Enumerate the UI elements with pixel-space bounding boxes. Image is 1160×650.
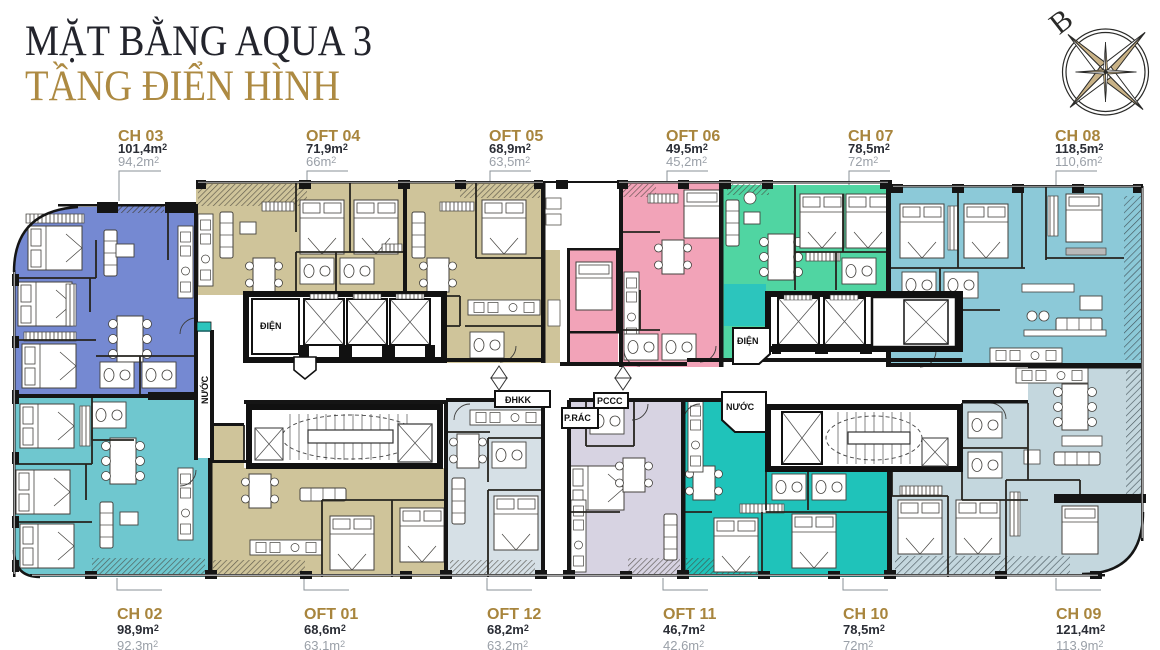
svg-text:94,2m2: 94,2m2 bbox=[118, 154, 159, 169]
svg-text:45,2m2: 45,2m2 bbox=[666, 154, 707, 169]
svg-text:68,2m2: 68,2m2 bbox=[487, 622, 529, 637]
svg-text:ĐHKK: ĐHKK bbox=[505, 395, 531, 405]
svg-text:63,2m2: 63,2m2 bbox=[487, 638, 528, 650]
svg-text:OFT 12: OFT 12 bbox=[487, 606, 541, 623]
svg-text:CH 09: CH 09 bbox=[1056, 606, 1101, 623]
svg-text:ĐIỆN: ĐIỆN bbox=[260, 320, 282, 331]
svg-text:121,4m2: 121,4m2 bbox=[1056, 622, 1105, 637]
svg-text:42,6m2: 42,6m2 bbox=[663, 638, 704, 650]
svg-text:OFT 11: OFT 11 bbox=[663, 606, 716, 623]
svg-text:46,7m2: 46,7m2 bbox=[663, 622, 705, 637]
svg-text:OFT 01: OFT 01 bbox=[304, 606, 358, 623]
svg-text:63,1m2: 63,1m2 bbox=[304, 638, 345, 650]
svg-text:63,5m2: 63,5m2 bbox=[489, 154, 530, 169]
svg-text:68,6m2: 68,6m2 bbox=[304, 622, 346, 637]
svg-text:MẶT BẰNG AQUA 3: MẶT BẰNG AQUA 3 bbox=[25, 17, 372, 65]
svg-text:110,6m2: 110,6m2 bbox=[1055, 154, 1102, 169]
svg-text:ĐIỆN: ĐIỆN bbox=[737, 335, 759, 346]
svg-text:TẦNG ĐIỂN HÌNH: TẦNG ĐIỂN HÌNH bbox=[25, 62, 340, 110]
svg-text:NƯỚC: NƯỚC bbox=[726, 401, 755, 412]
svg-text:CH 02: CH 02 bbox=[117, 606, 162, 623]
svg-text:P.RÁC: P.RÁC bbox=[564, 413, 591, 423]
svg-text:98,9m2: 98,9m2 bbox=[117, 622, 159, 637]
svg-text:72m2: 72m2 bbox=[843, 638, 873, 650]
svg-text:92,3m2: 92,3m2 bbox=[117, 638, 158, 650]
svg-text:NƯỚC: NƯỚC bbox=[199, 375, 210, 404]
svg-text:CH 10: CH 10 bbox=[843, 606, 888, 623]
svg-text:PCCC: PCCC bbox=[597, 396, 623, 406]
svg-text:78,5m2: 78,5m2 bbox=[843, 622, 885, 637]
svg-text:113,9m2: 113,9m2 bbox=[1056, 638, 1103, 650]
